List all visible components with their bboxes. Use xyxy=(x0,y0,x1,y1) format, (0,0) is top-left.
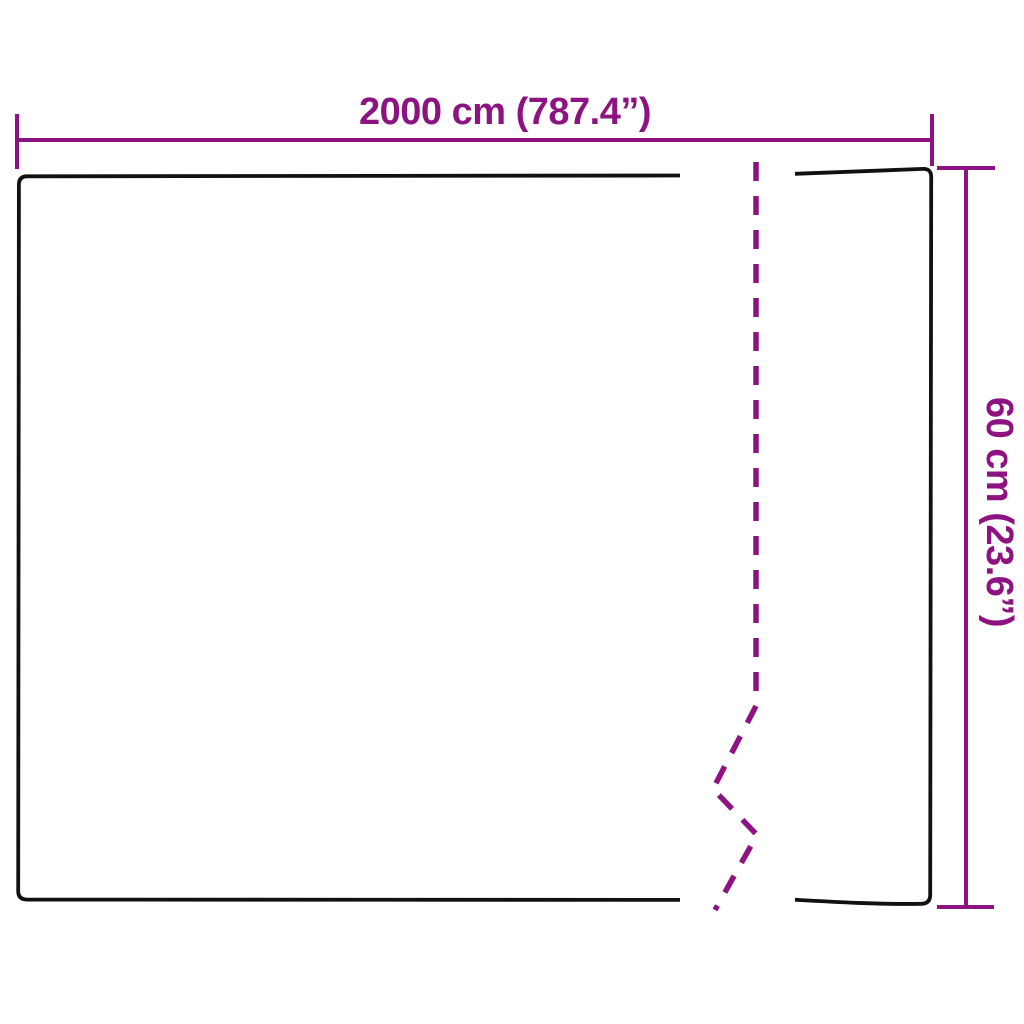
dimension-diagram: 2000 cm (787.4”) 60 cm (23.6”) xyxy=(0,0,1024,1024)
diagram-linework xyxy=(0,0,1024,1024)
height-dimension-label: 60 cm (23.6”) xyxy=(980,397,1018,627)
outline-left-section xyxy=(18,176,680,901)
width-dimension-label: 2000 cm (787.4”) xyxy=(359,93,651,131)
break-line-icon xyxy=(713,162,757,910)
outline-right-section xyxy=(795,169,931,904)
